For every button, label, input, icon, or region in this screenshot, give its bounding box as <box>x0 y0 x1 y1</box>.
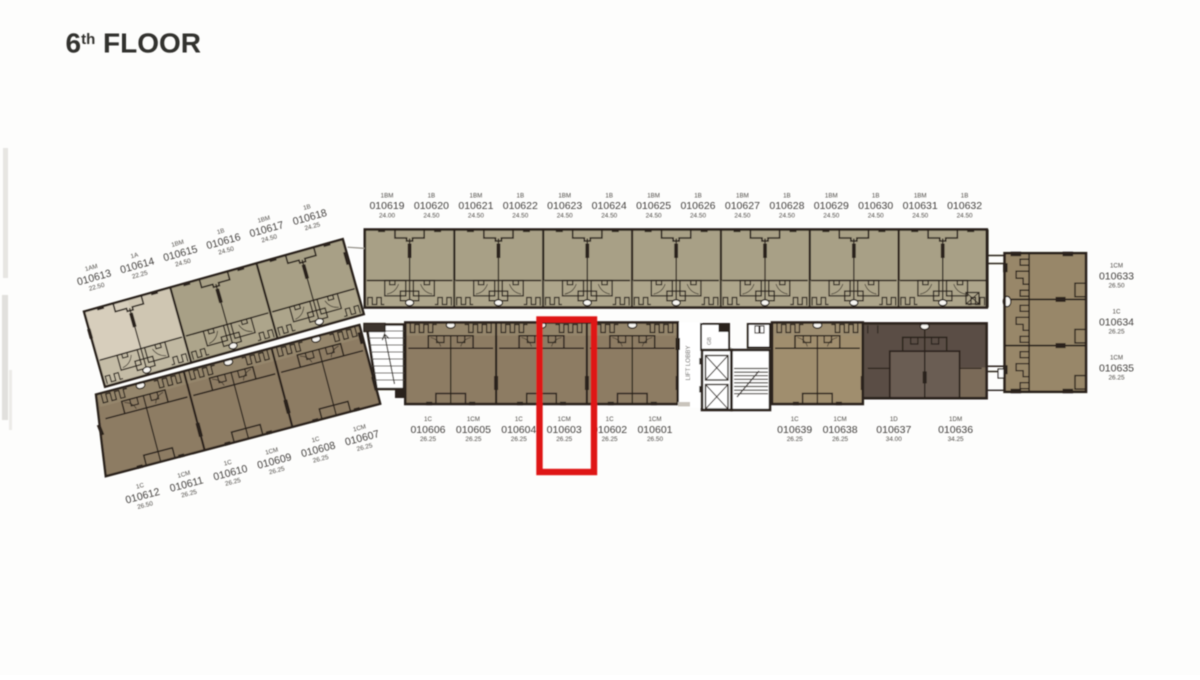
svg-text:26.25: 26.25 <box>832 436 848 443</box>
svg-text:1BM: 1BM <box>647 192 660 199</box>
svg-text:010637: 010637 <box>876 424 911 436</box>
svg-text:010601: 010601 <box>637 424 672 436</box>
svg-text:1CM: 1CM <box>648 416 661 423</box>
svg-text:26.25: 26.25 <box>556 436 572 443</box>
svg-text:26.25: 26.25 <box>602 436 618 443</box>
svg-text:1B: 1B <box>961 192 969 199</box>
svg-text:010627: 010627 <box>725 200 760 212</box>
svg-text:1BM: 1BM <box>825 192 838 199</box>
svg-text:24.50: 24.50 <box>512 212 528 219</box>
svg-text:010623: 010623 <box>547 200 582 212</box>
svg-text:010619: 010619 <box>369 200 404 212</box>
svg-text:1B: 1B <box>517 192 525 199</box>
svg-text:24.50: 24.50 <box>823 212 839 219</box>
svg-text:24.50: 24.50 <box>423 212 439 219</box>
svg-text:1C: 1C <box>515 416 523 423</box>
svg-text:24.50: 24.50 <box>690 212 706 219</box>
svg-text:010622: 010622 <box>503 200 538 212</box>
svg-text:010604: 010604 <box>501 424 536 436</box>
svg-text:26.50: 26.50 <box>647 436 663 443</box>
svg-text:1CM: 1CM <box>1110 263 1123 270</box>
svg-text:26.25: 26.25 <box>787 436 803 443</box>
svg-text:1B: 1B <box>428 192 436 199</box>
svg-text:010605: 010605 <box>456 424 491 436</box>
svg-text:010638: 010638 <box>823 424 858 436</box>
svg-text:010636: 010636 <box>938 424 973 436</box>
svg-text:010620: 010620 <box>414 200 449 212</box>
svg-text:24.50: 24.50 <box>868 212 884 219</box>
svg-text:1B: 1B <box>694 192 702 199</box>
svg-text:010633: 010633 <box>1099 270 1134 282</box>
svg-text:24.50: 24.50 <box>646 212 662 219</box>
svg-text:1B: 1B <box>783 192 791 199</box>
svg-text:1C: 1C <box>606 416 614 423</box>
svg-text:010639: 010639 <box>777 424 812 436</box>
svg-text:24.50: 24.50 <box>957 212 973 219</box>
svg-text:010603: 010603 <box>547 424 582 436</box>
svg-text:1C: 1C <box>424 416 432 423</box>
svg-text:010629: 010629 <box>814 200 849 212</box>
svg-text:010624: 010624 <box>592 200 627 212</box>
svg-text:24.50: 24.50 <box>779 212 795 219</box>
svg-text:010632: 010632 <box>947 200 982 212</box>
svg-text:010630: 010630 <box>858 200 893 212</box>
svg-text:1BM: 1BM <box>470 192 483 199</box>
svg-text:1BM: 1BM <box>558 192 571 199</box>
svg-text:24.50: 24.50 <box>468 212 484 219</box>
svg-text:34.25: 34.25 <box>948 436 964 443</box>
svg-text:26.50: 26.50 <box>1109 283 1125 290</box>
svg-text:26.25: 26.25 <box>420 436 436 443</box>
svg-text:010631: 010631 <box>903 200 938 212</box>
svg-text:24.00: 24.00 <box>379 212 395 219</box>
svg-text:1C: 1C <box>1113 309 1121 316</box>
svg-text:1B: 1B <box>872 192 880 199</box>
svg-text:010606: 010606 <box>410 424 445 436</box>
svg-text:26.25: 26.25 <box>1109 329 1125 336</box>
svg-text:1CM: 1CM <box>467 416 480 423</box>
svg-text:1CM: 1CM <box>558 416 571 423</box>
svg-text:24.50: 24.50 <box>557 212 573 219</box>
svg-text:010628: 010628 <box>769 200 804 212</box>
svg-text:010626: 010626 <box>680 200 715 212</box>
svg-text:010635: 010635 <box>1099 362 1134 374</box>
svg-text:1D: 1D <box>890 416 898 423</box>
svg-text:1CM: 1CM <box>834 416 847 423</box>
svg-text:1B: 1B <box>605 192 613 199</box>
svg-text:24.50: 24.50 <box>601 212 617 219</box>
svg-text:010625: 010625 <box>636 200 671 212</box>
svg-text:010634: 010634 <box>1099 316 1134 328</box>
svg-text:26.25: 26.25 <box>465 436 481 443</box>
svg-text:1BM: 1BM <box>736 192 749 199</box>
svg-text:24.50: 24.50 <box>734 212 750 219</box>
svg-text:LIFT LOBBY: LIFT LOBBY <box>685 346 692 381</box>
svg-text:1BM: 1BM <box>381 192 394 199</box>
svg-text:GB: GB <box>707 337 713 345</box>
svg-text:010602: 010602 <box>592 424 627 436</box>
svg-text:1C: 1C <box>791 416 799 423</box>
svg-text:1DM: 1DM <box>949 416 962 423</box>
svg-text:24.50: 24.50 <box>912 212 928 219</box>
svg-text:26.25: 26.25 <box>1109 375 1125 382</box>
svg-text:010621: 010621 <box>458 200 493 212</box>
svg-text:1CM: 1CM <box>1110 355 1123 362</box>
svg-text:1BM: 1BM <box>914 192 927 199</box>
svg-text:34.00: 34.00 <box>886 436 902 443</box>
svg-text:26.25: 26.25 <box>511 436 527 443</box>
